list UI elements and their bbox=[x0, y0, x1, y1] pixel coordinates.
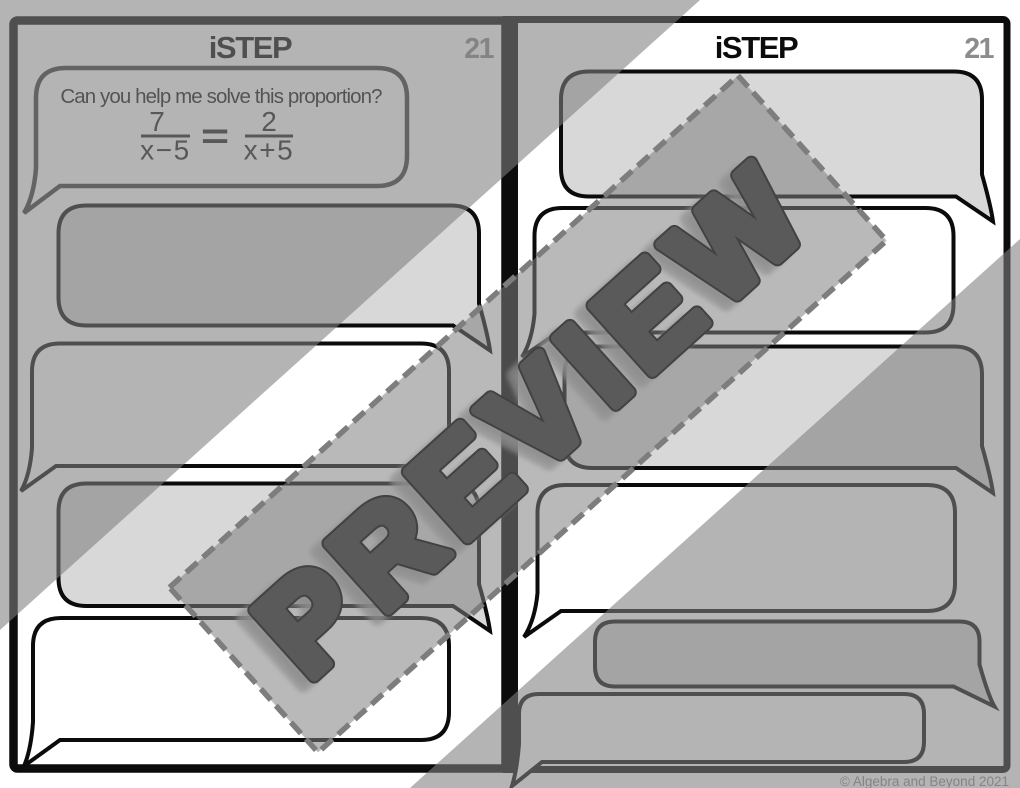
svg-text:21: 21 bbox=[964, 33, 994, 65]
svg-text:iSTEP: iSTEP bbox=[715, 30, 798, 65]
